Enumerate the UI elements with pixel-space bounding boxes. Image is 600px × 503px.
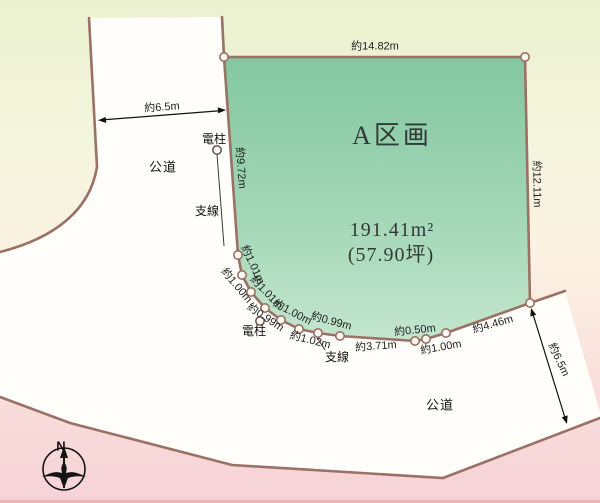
guy-wire-upper-label: 支線: [195, 205, 219, 217]
site-plan-drawing: [0, 0, 600, 503]
compass-north-label: N: [56, 440, 65, 453]
utility-pole-upper-marker: [213, 146, 221, 154]
dim-left-edge-label: 約9.72m: [233, 147, 247, 189]
utility-pole-lower-label: 電柱: [242, 325, 266, 337]
dim-top-edge-label: 約14.82m: [351, 42, 399, 53]
plot-area-sqm: 191.41m²: [350, 220, 435, 240]
site-plan: 約14.82m 約12.11m 約9.72m 約6.5m 約6.5m 公道 公道…: [0, 0, 600, 503]
road-label-lower: 公道: [426, 399, 454, 412]
guy-wire-lower-label: 支線: [325, 351, 349, 363]
plot-title: A区画: [352, 123, 432, 149]
utility-pole-upper-label: 電柱: [202, 133, 226, 145]
dim-right-edge-label: 約12.11m: [530, 160, 542, 207]
plot-area-tsubo: (57.90坪): [348, 245, 434, 265]
road-label-upper: 公道: [149, 161, 177, 174]
